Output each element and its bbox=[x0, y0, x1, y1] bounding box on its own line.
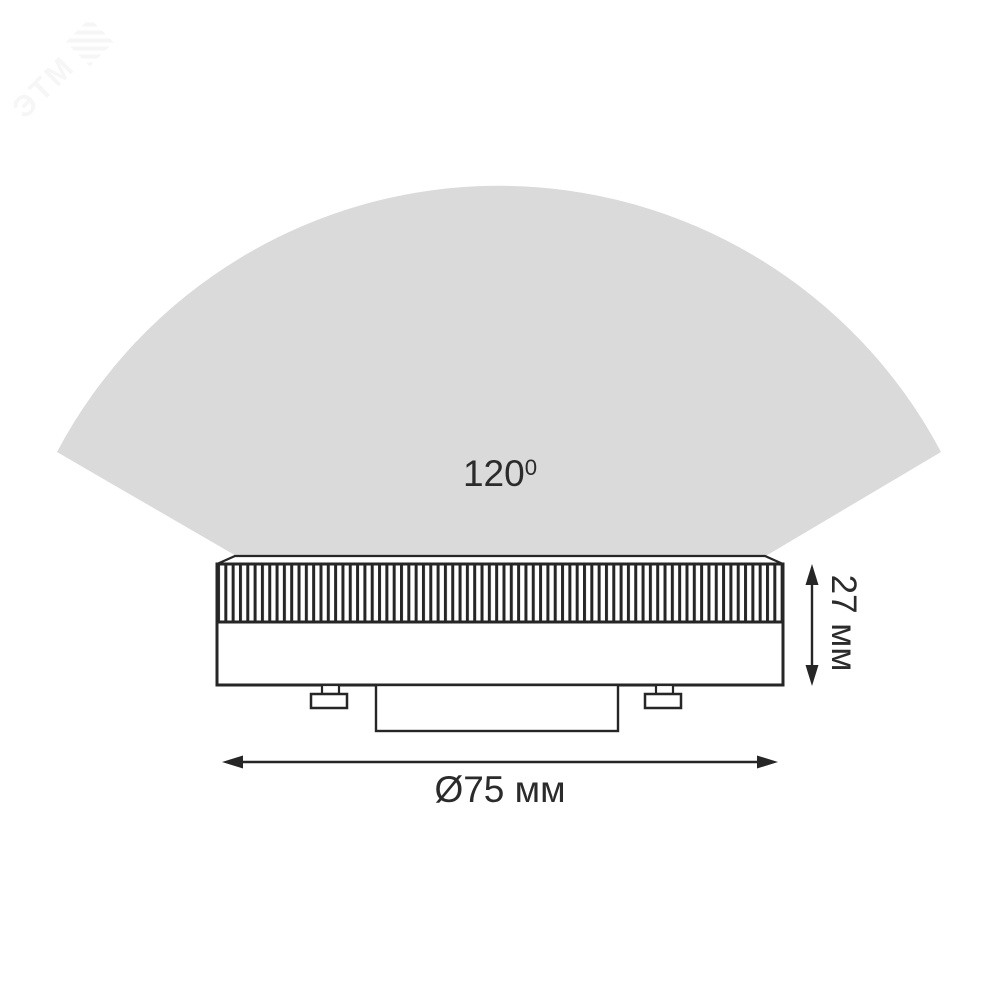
height-dimension-label: 27 мм bbox=[821, 553, 865, 693]
beam-angle-value: 120 bbox=[463, 453, 525, 494]
lamp-pin-left bbox=[311, 685, 347, 708]
lamp-dimension-diagram bbox=[0, 0, 1000, 1000]
lamp-body bbox=[217, 622, 783, 685]
height-dimension-arrow bbox=[806, 564, 819, 686]
pin-stem bbox=[656, 685, 673, 694]
arrowhead-left-icon bbox=[222, 756, 243, 769]
beam-angle-label: 1200 bbox=[400, 448, 600, 494]
lamp-base-housing bbox=[376, 685, 618, 731]
page: ЭТМ bbox=[0, 0, 1000, 1000]
arrowhead-down-icon bbox=[806, 665, 819, 686]
pin-foot bbox=[311, 694, 347, 708]
diameter-dimension-arrow bbox=[222, 756, 778, 769]
arrowhead-right-icon bbox=[757, 756, 778, 769]
beam-angle-superscript: 0 bbox=[525, 455, 537, 480]
lamp-ribbed-band bbox=[217, 564, 783, 622]
pin-foot bbox=[645, 694, 681, 708]
beam-cone-shape bbox=[57, 186, 941, 557]
pin-stem bbox=[322, 685, 339, 694]
arrowhead-up-icon bbox=[806, 564, 819, 585]
diameter-dimension-label: Ø75 мм bbox=[350, 770, 650, 810]
lamp-pin-right bbox=[645, 685, 681, 708]
